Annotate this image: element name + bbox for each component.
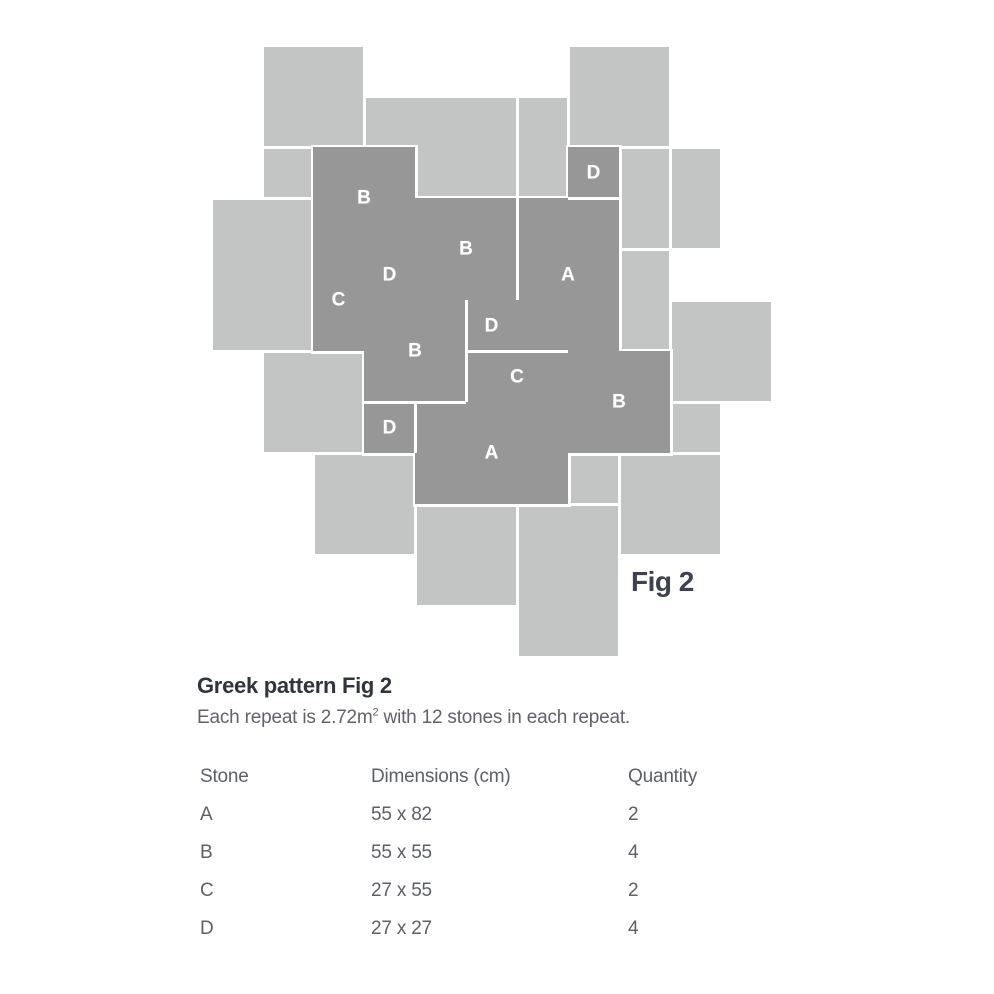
light-tile xyxy=(519,506,618,656)
table-header-cell: Dimensions (cm) xyxy=(371,758,628,796)
table-cell-dimensions: 55 x 82 xyxy=(371,796,628,834)
light-tile xyxy=(264,353,363,452)
stone-label-c: C xyxy=(332,291,346,310)
greek-pattern-diagram: Fig 2 BDBADCDBCBDA xyxy=(0,0,994,680)
stone-label-d: D xyxy=(485,316,499,335)
light-tile xyxy=(519,98,567,197)
light-tile xyxy=(672,149,720,248)
stone-table: StoneDimensions (cm)QuantityA55 x 822B55… xyxy=(200,758,748,948)
light-tile xyxy=(417,506,516,605)
table-cell-stone: D xyxy=(200,910,371,948)
table-cell-quantity: 2 xyxy=(628,872,748,910)
table-cell-stone: C xyxy=(200,872,371,910)
stone-label-a: A xyxy=(485,444,499,463)
table-cell-quantity: 2 xyxy=(628,796,748,834)
repeat-description-tail: with 12 stones in each repeat. xyxy=(378,707,630,728)
repeat-description: Each repeat is 2.72m2 with 12 stones in … xyxy=(197,707,630,729)
light-tile xyxy=(621,455,720,554)
table-cell-stone: A xyxy=(200,796,371,834)
stone-joint xyxy=(516,198,519,300)
stone-joint xyxy=(414,402,417,453)
table-header-cell: Stone xyxy=(200,758,371,796)
table-header-cell: Quantity xyxy=(628,758,748,796)
light-tile xyxy=(264,149,312,197)
fig-caption: Fig 2 xyxy=(631,566,694,598)
stone-joint xyxy=(568,197,619,200)
stone-label-d: D xyxy=(383,265,397,284)
section-title: Greek pattern Fig 2 xyxy=(197,673,392,699)
page: Fig 2 BDBADCDBCBDA Greek pattern Fig 2 E… xyxy=(0,0,994,994)
table-cell-quantity: 4 xyxy=(628,834,748,872)
light-tile xyxy=(213,200,312,350)
stone-joint xyxy=(466,350,568,353)
table-cell-stone: B xyxy=(200,834,371,872)
table-cell-dimensions: 27 x 27 xyxy=(371,910,628,948)
light-tile xyxy=(672,302,771,401)
light-tile xyxy=(315,455,414,554)
stone-label-d: D xyxy=(587,163,601,182)
light-tile xyxy=(570,455,618,503)
stone-label-b: B xyxy=(357,189,371,208)
stone-label-c: C xyxy=(510,367,524,386)
light-tile xyxy=(621,251,669,350)
light-tile xyxy=(570,47,669,146)
stone-label-a: A xyxy=(561,265,575,284)
stone-label-b: B xyxy=(459,240,473,259)
repeat-description-text: Each repeat is 2.72m xyxy=(197,707,373,728)
stone-label-b: B xyxy=(612,393,626,412)
table-cell-dimensions: 27 x 55 xyxy=(371,872,628,910)
light-tile xyxy=(621,149,669,248)
stone-label-b: B xyxy=(408,342,422,361)
light-tile xyxy=(264,47,363,146)
light-tile xyxy=(672,404,720,452)
table-cell-dimensions: 55 x 55 xyxy=(371,834,628,872)
table-cell-quantity: 4 xyxy=(628,910,748,948)
stone-label-d: D xyxy=(383,418,397,437)
